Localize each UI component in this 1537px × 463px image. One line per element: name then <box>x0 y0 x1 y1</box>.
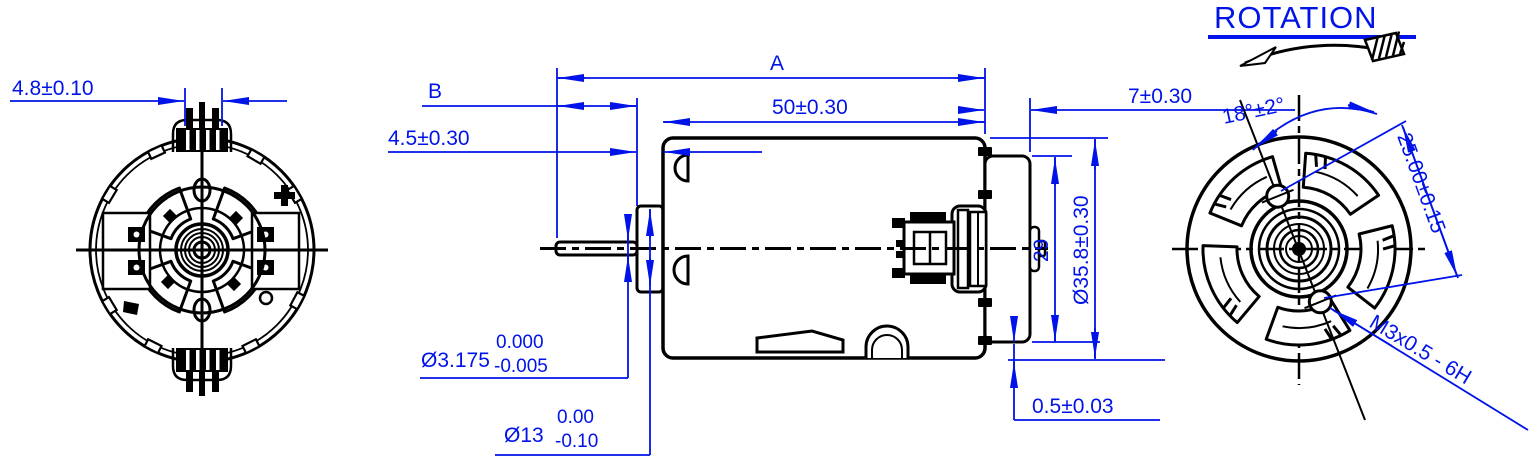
endcap-length-label: 7±0.30 <box>1128 85 1192 108</box>
overall-length-a-label: A <box>770 52 784 75</box>
dim-endcap-step: 0.5±0.03 <box>1014 318 1160 420</box>
dim-body-diameter: Ø35.8±0.30 <box>1070 139 1095 359</box>
can-vent-top <box>675 155 688 181</box>
motor-dimension-drawing: 4.8±0.10 <box>0 0 1537 463</box>
dim-overall-length-a: A <box>557 52 985 78</box>
rotation-label: ROTATION <box>1214 0 1378 35</box>
boss-tol-upper: 0.00 <box>557 407 594 428</box>
boss-diameter-label: Ø13 <box>504 424 544 447</box>
dim-across-flats: 29 <box>1030 157 1055 342</box>
mount-thread-label: M3x0.5 - 6H <box>1365 311 1475 390</box>
dim-mount-thread: M3x0.5 - 6H <box>1330 308 1528 430</box>
dim-shaft-diameter: Ø3.175 0.000 -0.005 <box>420 214 628 378</box>
across-flats-label: 29 <box>1030 239 1053 262</box>
rear-view: 4.8±0.10 <box>10 77 328 396</box>
shaft-length-b-label: B <box>428 80 442 103</box>
boss-tol-lower: -0.10 <box>555 431 598 452</box>
can-vent-bottom <box>674 256 688 284</box>
dim-shaft-length-b: B <box>422 80 637 106</box>
body-length-label: 50±0.30 <box>772 96 848 119</box>
dim-body-length: 50±0.30 <box>663 96 985 122</box>
rear-terminal-width-label: 4.8±0.10 <box>12 77 94 100</box>
dim-rear-terminal-width: 4.8±0.10 <box>10 77 287 126</box>
polarity-plus-mark-vertical <box>281 185 288 206</box>
shaft-diameter-label: Ø3.175 <box>421 349 490 372</box>
front-view: ROTATION 18°±2° 25.00±0.15 <box>1172 0 1528 430</box>
shaft-tol-upper: 0.000 <box>496 332 544 353</box>
body-diameter-label: Ø35.8±0.30 <box>1070 195 1093 305</box>
shaft-tol-lower: -0.005 <box>494 356 548 377</box>
side-view: A B 50±0.30 4.5±0.30 <box>388 52 1295 455</box>
hole-angle-label: 18°±2° <box>1220 93 1287 129</box>
engineering-drawing-page: 4.8±0.10 <box>0 0 1537 463</box>
endcap-step-label: 0.5±0.03 <box>1032 395 1114 418</box>
boss-length-label: 4.5±0.30 <box>388 127 470 150</box>
